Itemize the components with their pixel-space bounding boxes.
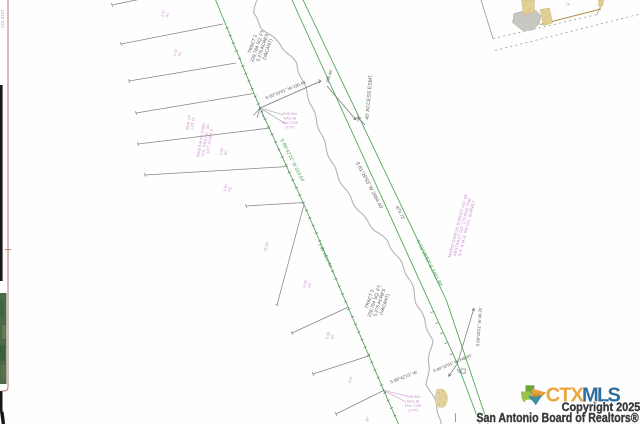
svg-text:VOL 9107: VOL 9107 (0, 9, 5, 28)
svg-text:FNC COR: FNC COR (405, 404, 422, 408)
svg-text:NAIL IN: NAIL IN (407, 400, 420, 404)
svg-text:FND 60d: FND 60d (283, 112, 297, 116)
svg-text:NAIL IN: NAIL IN (284, 117, 297, 121)
svg-text:7F: 7F (566, 3, 570, 7)
svg-text:FND 60d: FND 60d (406, 395, 420, 399)
svg-text:(TYP): (TYP) (285, 126, 294, 130)
svg-text:(TYP): (TYP) (408, 409, 417, 413)
svg-text:FNC COR: FNC COR (282, 121, 299, 125)
svg-text:San Antonio Board of Realtors®: San Antonio Board of Realtors® (476, 411, 639, 424)
